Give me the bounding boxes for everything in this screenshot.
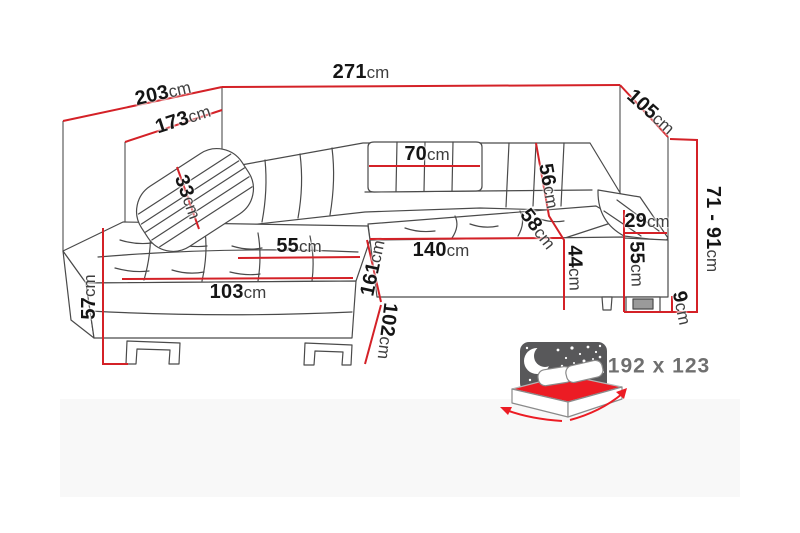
dim-label-armrest-width: 29cm xyxy=(624,211,669,231)
dim-label-seat-width: 140cm xyxy=(413,240,470,260)
background-band xyxy=(60,399,740,497)
dim-line-271 xyxy=(222,85,620,87)
dim-label-chaise-width: 103cm xyxy=(210,282,267,302)
dim-label-width-total: 271cm xyxy=(333,62,390,82)
dim-label-left-height: 57cm xyxy=(79,274,99,319)
dim-label-seat-height: 44cm xyxy=(564,245,586,291)
dim-label-chaise-seat-width: 55cm xyxy=(276,236,321,256)
dim-line-55-left xyxy=(238,257,360,258)
sofa-leg-detail xyxy=(633,299,653,309)
sofa-dimension-diagram: 203cm 173cm 271cm 105cm 70cm 33cm 56cm 5… xyxy=(0,0,800,533)
sofa-leg xyxy=(126,341,180,364)
moon-cutout xyxy=(534,345,556,367)
dim-label-armrest-height: 55cm xyxy=(626,241,648,287)
dim-line-103 xyxy=(122,278,353,279)
sofa-leg xyxy=(304,343,352,365)
dim-label-total-height: 71 - 91cm xyxy=(703,186,723,272)
sofa-line-drawing xyxy=(0,0,800,533)
sleeping-area-size: 192 x 123 xyxy=(608,356,710,377)
sofa-leg xyxy=(602,297,612,310)
dim-label-back-cushion: 70cm xyxy=(404,144,449,164)
